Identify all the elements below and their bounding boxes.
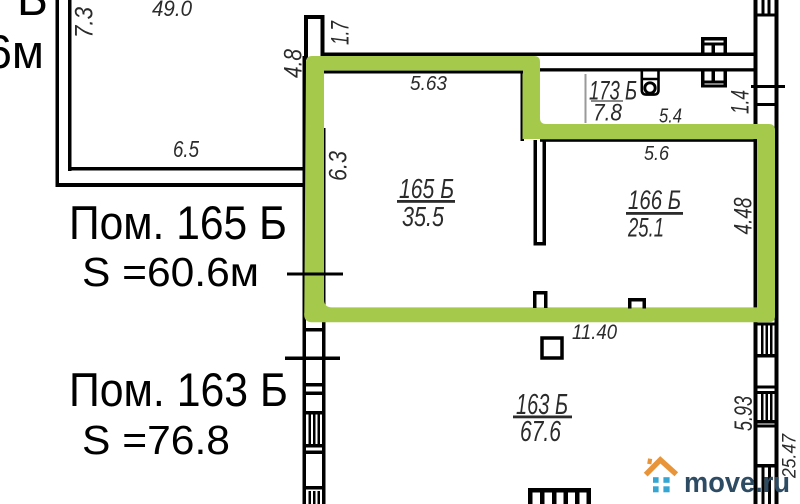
svg-text:166 Б: 166 Б (628, 185, 681, 215)
svg-text:6.3: 6.3 (325, 151, 353, 181)
svg-text:S =76.8: S =76.8 (82, 417, 230, 463)
svg-text:25.1: 25.1 (627, 213, 664, 243)
svg-text:1.4: 1.4 (727, 90, 755, 114)
svg-text:6м: 6м (0, 25, 44, 78)
svg-text:7.8: 7.8 (593, 100, 623, 127)
svg-text:35.5: 35.5 (402, 201, 444, 232)
svg-text:Пом. 165 Б: Пом. 165 Б (69, 196, 287, 249)
svg-text:5.6: 5.6 (644, 143, 670, 165)
svg-text:11.40: 11.40 (572, 321, 617, 344)
svg-text:move.ru: move.ru (684, 467, 790, 499)
svg-text:4.48: 4.48 (730, 197, 758, 234)
svg-text:Б: Б (17, 0, 48, 25)
svg-text:67.6: 67.6 (520, 416, 562, 448)
svg-text:5.4: 5.4 (659, 106, 682, 128)
svg-text:7.3: 7.3 (71, 7, 99, 38)
svg-text:5.63: 5.63 (410, 73, 447, 95)
svg-text:1.7: 1.7 (327, 20, 355, 45)
svg-text:S =60.6м: S =60.6м (82, 249, 259, 295)
svg-text:49.0: 49.0 (152, 0, 193, 21)
svg-text:Пом. 163 Б: Пом. 163 Б (69, 363, 288, 416)
svg-text:5.93: 5.93 (730, 396, 758, 431)
svg-text:165 Б: 165 Б (399, 173, 454, 204)
svg-text:6.5: 6.5 (173, 136, 199, 162)
